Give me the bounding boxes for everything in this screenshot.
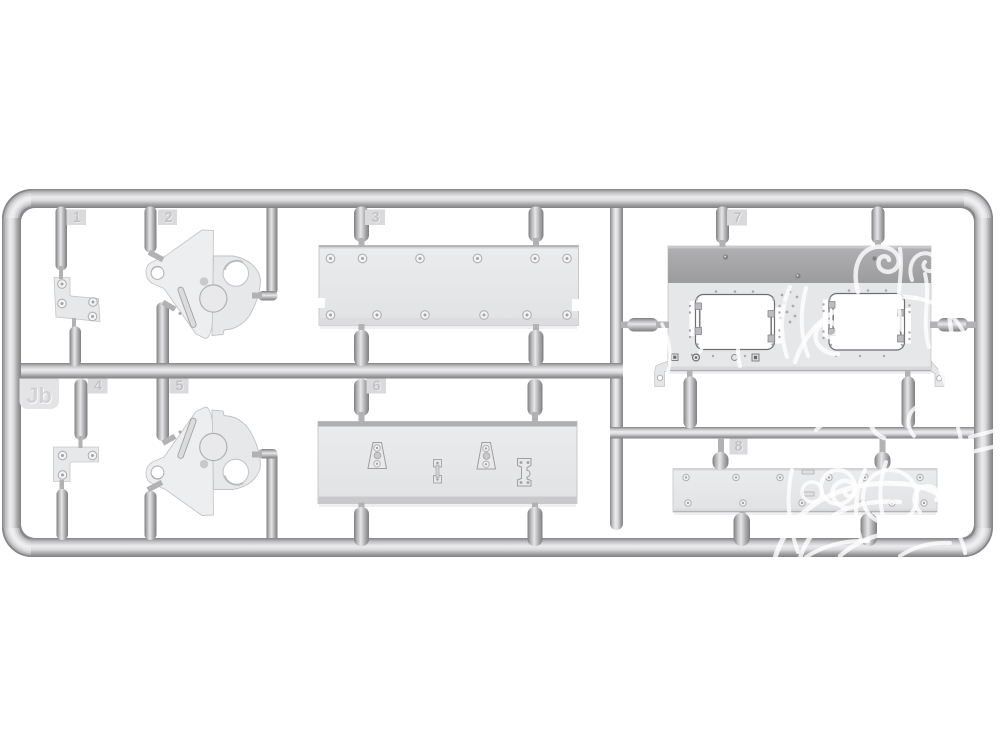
svg-text:8: 8 [734,439,742,455]
svg-text:5: 5 [175,379,183,395]
svg-text:7: 7 [733,211,741,227]
svg-text:4: 4 [94,379,102,395]
svg-text:2: 2 [164,210,172,226]
svg-text:Jb: Jb [26,383,52,408]
svg-text:1: 1 [73,210,81,226]
svg-text:3: 3 [371,210,379,226]
svg-text:6: 6 [372,379,380,395]
